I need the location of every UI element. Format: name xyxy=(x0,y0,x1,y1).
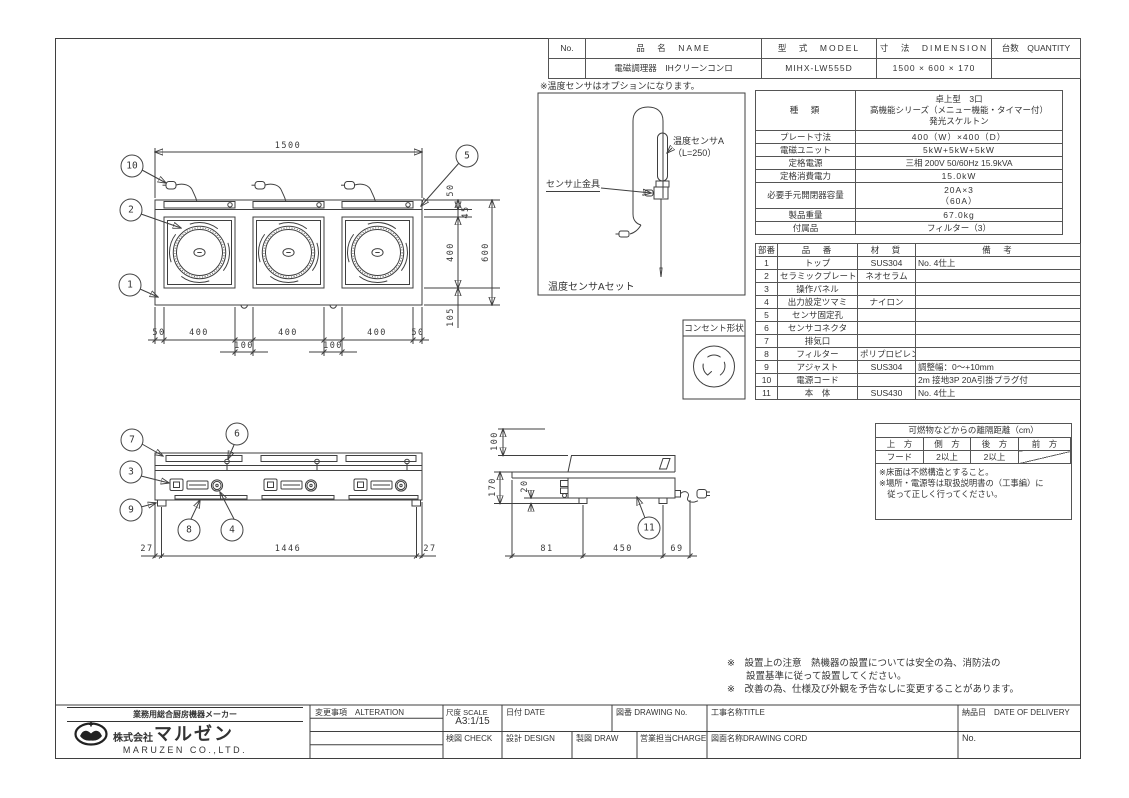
clearance-header: 後 方 xyxy=(971,438,1019,451)
parts-cell: No. 4仕上 xyxy=(916,387,1081,400)
balloon-9: 9 xyxy=(120,499,143,522)
parts-cell: SUS430 xyxy=(858,387,916,400)
note-line: ※ 改善の為、仕様及び外観を予告なしに変更することがあります。 xyxy=(727,684,1019,697)
no-label: No. xyxy=(962,733,976,743)
balloon-7: 7 xyxy=(121,429,144,452)
company-logotype: マルゼン xyxy=(154,720,234,746)
dim-plan-bottom: 400 xyxy=(278,328,298,338)
clearance-cell: フード xyxy=(876,451,924,464)
spec-label: 定格電源 xyxy=(756,157,856,170)
clearance-title: 可燃物などからの離隔距離（cm） xyxy=(876,424,1071,438)
parts-table: 部番 品 番 材 質 備 考 1トップSUS304No. 4仕上 2セラミックプ… xyxy=(755,243,1081,400)
cell-dimension: 1500 × 600 × 170 xyxy=(877,59,992,79)
scale-value: A3:1/15 xyxy=(443,716,502,727)
sensor-probe-length-label: （L=250） xyxy=(673,146,716,159)
spec-value: 卓上型 3口 高機能シリーズ（メニュー機能・タイマー付） 発光スケルトン xyxy=(856,91,1063,131)
sensor-connector xyxy=(225,459,410,470)
burner-plate xyxy=(253,217,324,288)
parts-header: 備 考 xyxy=(916,244,1081,257)
title-label: 工事名称TITLE xyxy=(711,707,765,718)
drawing-sheet: No. 品 名 NAME 型 式 MODEL 寸 法 DIMENSION 台数 … xyxy=(0,0,1129,798)
burner-plate xyxy=(342,217,413,288)
delivery-label: 納品日 DATE OF DELIVERY xyxy=(962,707,1070,718)
adjust-foot xyxy=(158,500,167,506)
parts-cell: 5 xyxy=(756,309,778,322)
parts-cell: 出力設定ツマミ xyxy=(778,296,858,309)
parts-cell: 本 体 xyxy=(778,387,858,400)
balloon-8: 8 xyxy=(178,519,201,542)
parts-cell: 1 xyxy=(756,257,778,270)
date-label: 日付 DATE xyxy=(506,707,545,718)
dim-plan-bottom: 400 xyxy=(367,328,387,338)
clearance-cell: 2以上 xyxy=(924,451,971,464)
balloon-6: 6 xyxy=(226,423,249,446)
dim-side-left: 20 xyxy=(520,479,530,492)
power-plug xyxy=(697,490,707,499)
sensor-cable-loop xyxy=(633,107,663,225)
spec-label: 定格消費電力 xyxy=(756,170,856,183)
clearance-cell-na xyxy=(1019,451,1071,464)
dim-plan-gap: 100 xyxy=(323,341,343,351)
balloon-10: 10 xyxy=(121,155,144,178)
dim-side-left: 100 xyxy=(490,431,500,451)
spec-value: フィルター（3） xyxy=(856,222,1063,235)
drawing-no-label: 図番 DRAWING No. xyxy=(616,707,687,718)
parts-cell: 10 xyxy=(756,374,778,387)
parts-cell xyxy=(916,270,1081,283)
parts-cell: SUS304 xyxy=(858,257,916,270)
parts-cell: セラミックプレート xyxy=(778,270,858,283)
dim-side-bottom: 81 xyxy=(540,544,553,554)
draw-label: 製図 DRAW xyxy=(576,733,618,744)
header-no: No. xyxy=(549,39,586,59)
parts-cell xyxy=(916,335,1081,348)
parts-cell: 排気口 xyxy=(778,335,858,348)
parts-cell xyxy=(858,322,916,335)
spec-value: 5kW+5kW+5kW xyxy=(856,144,1063,157)
note-line: 設置基準に従って設置してください。 xyxy=(727,671,1019,684)
header-table: No. 品 名 NAME 型 式 MODEL 寸 法 DIMENSION 台数 … xyxy=(548,38,1081,79)
parts-cell xyxy=(858,335,916,348)
clearance-notes: ※床面は不燃構造とすること。 ※場所・電源等は取扱説明書の（工事編）に 従って正… xyxy=(876,464,1071,500)
power-cord xyxy=(252,182,286,202)
parts-cell: 2 xyxy=(756,270,778,283)
parts-cell: トップ xyxy=(778,257,858,270)
header-model: 型 式 MODEL xyxy=(762,39,877,59)
parts-cell: 2m 接地3P 20A引掛プラグ付 xyxy=(916,374,1081,387)
parts-cell xyxy=(858,309,916,322)
dim-plan-right: 600 xyxy=(481,242,491,262)
parts-cell xyxy=(858,374,916,387)
dim-front-bottom: 27 xyxy=(423,544,436,554)
control-panel xyxy=(170,479,223,491)
clearance-header: 上 方 xyxy=(876,438,924,451)
drawing-cord-label: 図面名称DRAWING CORD xyxy=(711,733,807,744)
control-panel xyxy=(264,479,317,491)
spec-value: 400（W）×400（D） xyxy=(856,131,1063,144)
front-view xyxy=(141,453,436,559)
parts-cell: 操作パネル xyxy=(778,283,858,296)
parts-header: 品 番 xyxy=(778,244,858,257)
parts-cell: フィルター xyxy=(778,348,858,361)
parts-cell: 3 xyxy=(756,283,778,296)
dim-plan-right: 50 xyxy=(446,183,456,196)
dim-plan-bottom: 50 xyxy=(152,328,165,338)
dim-plan-width: 1500 xyxy=(275,141,301,151)
plan-view xyxy=(155,182,422,309)
parts-cell: ナイロン xyxy=(858,296,916,309)
dim-plan-gap: 100 xyxy=(234,341,254,351)
balloon-1: 1 xyxy=(119,274,142,297)
dim-plan-bottom: 50 xyxy=(411,328,424,338)
sensor-set-caption: 温度センサAセット xyxy=(548,278,635,293)
cell-model: MIHX-LW555D xyxy=(762,59,877,79)
company-en: MARUZEN CO.,LTD. xyxy=(67,745,303,755)
parts-cell: 電源コード xyxy=(778,374,858,387)
parts-cell: ポリプロピレン xyxy=(858,348,916,361)
locking-receptacle-icon xyxy=(694,346,735,387)
spec-table: 種 類卓上型 3口 高機能シリーズ（メニュー機能・タイマー付） 発光スケルトン … xyxy=(755,90,1063,235)
sensor-fixing-holes xyxy=(228,203,410,207)
parts-header: 材 質 xyxy=(858,244,916,257)
clearance-table: 可燃物などからの離隔距離（cm） 上 方 側 方 後 方 前 方 フード 2以上… xyxy=(875,423,1072,520)
parts-cell xyxy=(916,309,1081,322)
parts-cell: 8 xyxy=(756,348,778,361)
installation-notes: ※ 設置上の注意 熱機器の設置については安全の為、消防法の 設置基準に従って設置… xyxy=(727,658,1019,696)
side-view xyxy=(494,429,710,559)
spec-label: 必要手元開閉器容量 xyxy=(756,183,856,209)
parts-cell: センサコネクタ xyxy=(778,322,858,335)
dim-plan-bottom: 400 xyxy=(189,328,209,338)
spec-label: プレート寸法 xyxy=(756,131,856,144)
parts-cell xyxy=(916,322,1081,335)
maruzen-logo-icon xyxy=(73,720,111,747)
balloon-11: 11 xyxy=(638,517,661,540)
dim-plan-right: 45 xyxy=(461,205,471,218)
check-label: 検図 CHECK xyxy=(446,733,492,744)
note-line: ※ 設置上の注意 熱機器の設置については安全の為、消防法の xyxy=(727,658,1019,671)
header-quantity: 台数 QUANTITY xyxy=(992,39,1081,59)
dim-side-left: 170 xyxy=(488,477,498,497)
filter-slot xyxy=(175,496,247,500)
sensor-option-box xyxy=(538,93,745,295)
dim-plan-right: 400 xyxy=(446,242,456,262)
charge-label: 営業担当CHARGE xyxy=(640,733,706,744)
balloon-3: 3 xyxy=(120,461,143,484)
parts-cell xyxy=(858,283,916,296)
company-prefix: 株式会社 xyxy=(113,729,153,744)
cell-quantity xyxy=(992,59,1081,79)
parts-cell xyxy=(916,296,1081,309)
alteration-label: 変更事項 ALTERATION xyxy=(315,707,404,718)
spec-value: 15.0kW xyxy=(856,170,1063,183)
header-dimension: 寸 法 DIMENSION xyxy=(877,39,992,59)
control-panel xyxy=(354,479,407,491)
outlet-title: コンセント形状 xyxy=(683,322,745,334)
sensor-clamp xyxy=(654,187,668,199)
burner-plate xyxy=(164,217,235,288)
parts-cell: 調整幅：0～+10mm xyxy=(916,361,1081,374)
spec-value: 20A×3 （60A） xyxy=(856,183,1063,209)
balloon-4: 4 xyxy=(221,519,244,542)
spec-value: 三相 200V 50/60Hz 15.9kVA xyxy=(856,157,1063,170)
dim-front-bottom: 1446 xyxy=(275,544,301,554)
parts-cell: ネオセラム xyxy=(858,270,916,283)
dim-side-bottom: 450 xyxy=(613,544,633,554)
dim-plan-right: 105 xyxy=(446,307,456,327)
parts-cell xyxy=(916,283,1081,296)
parts-cell: 11 xyxy=(756,387,778,400)
spec-label: 製品重量 xyxy=(756,209,856,222)
exhaust-vent-band xyxy=(164,202,235,209)
dim-front-bottom: 27 xyxy=(140,544,153,554)
power-cord xyxy=(163,182,197,202)
clearance-header: 側 方 xyxy=(924,438,971,451)
parts-header: 部番 xyxy=(756,244,778,257)
sensor-clamp-label: センサ止金具 xyxy=(546,177,600,192)
spec-label: 付属品 xyxy=(756,222,856,235)
power-cord xyxy=(341,182,375,202)
power-cord xyxy=(681,492,699,502)
spec-label: 種 類 xyxy=(756,91,856,131)
balloon-2: 2 xyxy=(120,199,143,222)
parts-cell: No. 4仕上 xyxy=(916,257,1081,270)
design-label: 設計 DESIGN xyxy=(506,733,555,744)
spec-value: 67.0kg xyxy=(856,209,1063,222)
parts-cell: 9 xyxy=(756,361,778,374)
spec-label: 電磁ユニット xyxy=(756,144,856,157)
parts-cell: SUS304 xyxy=(858,361,916,374)
parts-cell xyxy=(916,348,1081,361)
cell-no xyxy=(549,59,586,79)
clearance-header: 前 方 xyxy=(1019,438,1071,451)
parts-cell: センサ固定孔 xyxy=(778,309,858,322)
dim-side-bottom: 69 xyxy=(670,544,683,554)
parts-cell: 7 xyxy=(756,335,778,348)
parts-cell: 6 xyxy=(756,322,778,335)
cell-name: 電磁調理器 IHクリーンコンロ xyxy=(586,59,762,79)
sensor-option-note: ※温度センサはオプションになります。 xyxy=(540,79,700,92)
parts-cell: 4 xyxy=(756,296,778,309)
balloon-5: 5 xyxy=(456,145,479,168)
parts-cell: アジャスト xyxy=(778,361,858,374)
adjust-foot xyxy=(579,498,587,504)
clearance-cell: 2以上 xyxy=(971,451,1019,464)
header-name: 品 名 NAME xyxy=(586,39,762,59)
